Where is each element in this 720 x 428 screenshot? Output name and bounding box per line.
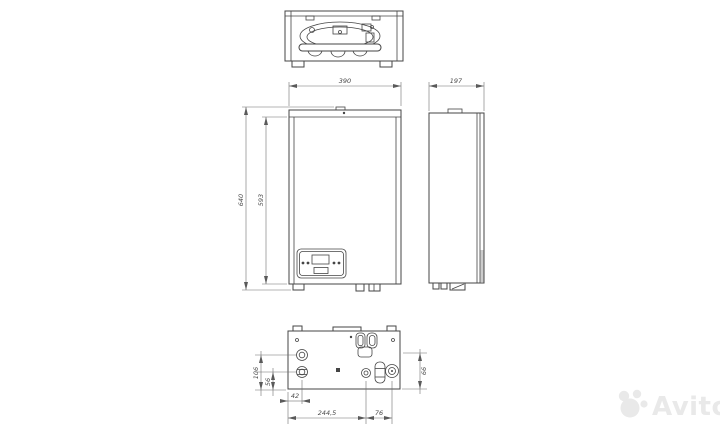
dim-label-244-5: 244,5 [318,409,337,417]
side-panel [429,113,484,283]
bracket-tab [333,327,361,331]
top-view [285,11,403,67]
bottom-view [288,326,400,389]
drain-plug [336,368,340,372]
dim-label-56: 56 [264,378,272,386]
dim-label-593: 593 [257,194,265,206]
dim-label-390: 390 [339,77,351,85]
panel-button [307,262,310,265]
front-lip [299,44,381,51]
top-tab [448,109,462,113]
dim-side-depth: 197 [429,77,484,111]
bottom-foot [293,284,304,290]
dim-height-body: 593 [257,117,287,284]
panel-button [338,262,341,265]
mounting-foot [292,61,304,67]
side-view [429,109,484,290]
dim-label-76: 76 [375,409,383,417]
avito-watermark: Avito [619,390,720,422]
dim-front-width: 390 [289,77,401,106]
vent-hole [343,112,345,114]
avito-logo-text: Avito [652,392,720,422]
front-panel [289,110,401,284]
dim-label-197: 197 [450,77,463,85]
pipe-stub [369,284,380,291]
boiler-dimension-drawing: 390 197 640 593 10 [0,0,720,428]
bracket-tab [293,326,302,331]
technical-drawing-canvas: 390 197 640 593 10 [0,0,720,428]
panel-button [302,262,305,265]
dim-bottom-right-height: 66 [402,349,428,394]
pipe-stub [433,283,439,289]
dim-label-66: 66 [420,367,428,375]
mounting-foot [380,61,392,67]
screw-hole [350,336,352,338]
dim-label-42: 42 [291,392,299,400]
avito-logo-icon [619,390,648,418]
pipe-stub [441,283,447,289]
front-view [289,107,401,291]
dim-label-106: 106 [252,367,260,379]
panel-button [333,262,336,265]
panel-edge-shading [481,250,484,283]
dim-label-640: 640 [237,194,245,206]
pipe-stub [356,284,364,291]
bracket-tab [387,326,396,331]
